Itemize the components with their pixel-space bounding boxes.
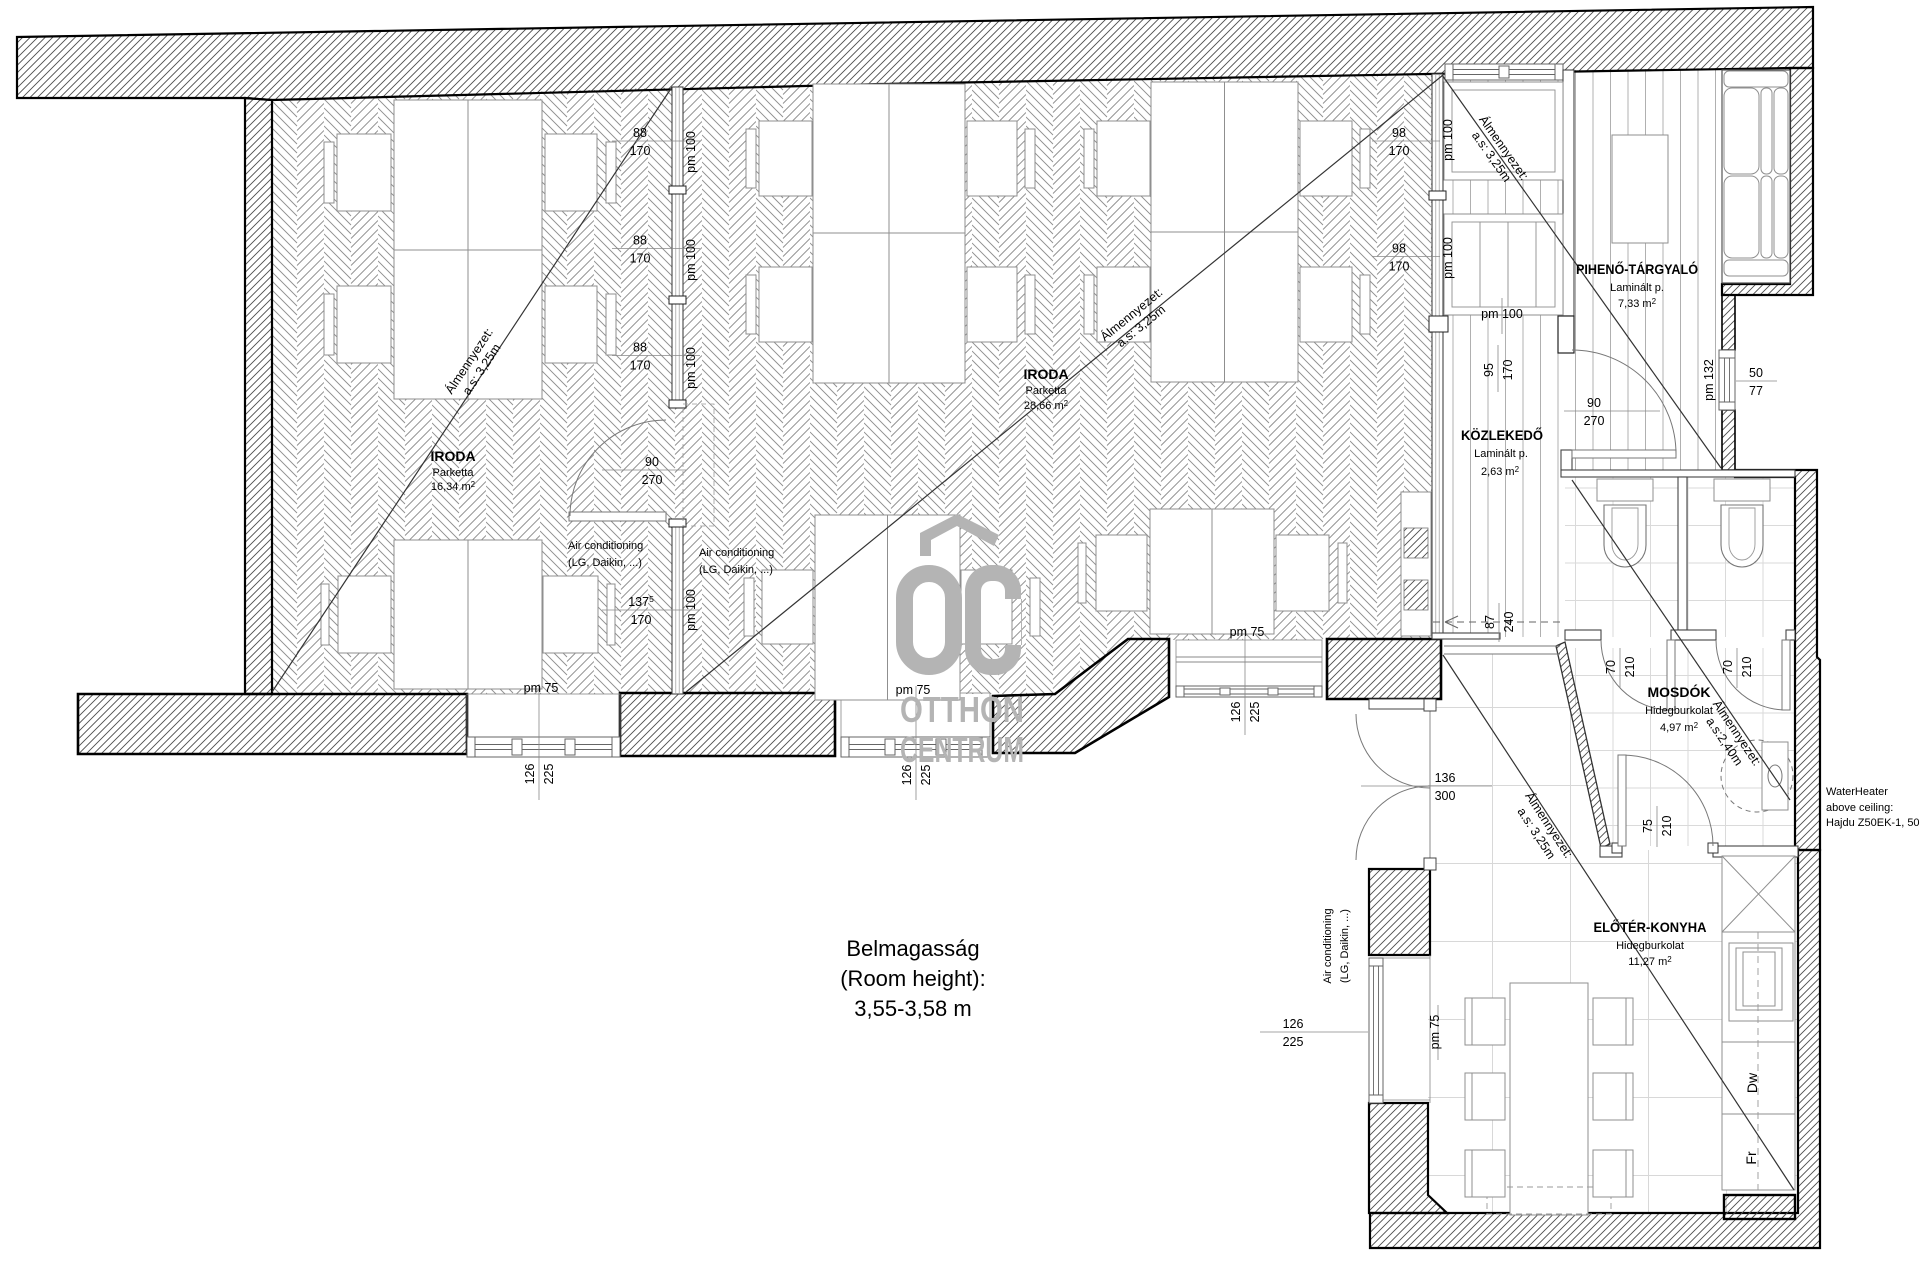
svg-text:240: 240: [1502, 612, 1516, 633]
svg-text:16,34 m2: 16,34 m2: [431, 480, 476, 493]
svg-text:pm 100: pm 100: [684, 589, 698, 631]
svg-text:OTTHON: OTTHON: [900, 689, 1024, 730]
svg-text:Hidegburkolat: Hidegburkolat: [1616, 940, 1684, 952]
svg-text:126: 126: [523, 764, 537, 785]
svg-text:pm 100: pm 100: [1441, 237, 1455, 279]
svg-text:PIHENŐ-TÁRGYALÓ: PIHENŐ-TÁRGYALÓ: [1576, 260, 1698, 277]
svg-text:Parketta: Parketta: [1026, 385, 1068, 397]
svg-text:KÖZLEKEDŐ: KÖZLEKEDŐ: [1461, 426, 1543, 443]
svg-text:Air conditioning: Air conditioning: [1322, 908, 1334, 983]
svg-text:Air conditioning: Air conditioning: [568, 540, 643, 552]
svg-text:ELŐTÉR-KONYHA: ELŐTÉR-KONYHA: [1594, 918, 1707, 935]
svg-text:210: 210: [1623, 657, 1637, 678]
svg-text:87: 87: [1483, 615, 1497, 629]
svg-text:88: 88: [633, 341, 647, 355]
svg-text:170: 170: [630, 144, 651, 158]
svg-text:Parketta: Parketta: [433, 467, 475, 479]
svg-text:(LG, Daikin, ...): (LG, Daikin, ...): [1339, 909, 1351, 983]
svg-text:90: 90: [1587, 396, 1601, 410]
svg-text:210: 210: [1660, 816, 1674, 837]
svg-text:70: 70: [1604, 660, 1618, 674]
svg-text:210: 210: [1740, 657, 1754, 678]
svg-text:Dw: Dw: [1744, 1072, 1760, 1093]
svg-text:Belmagasság: Belmagasság: [846, 936, 979, 961]
svg-text:Hidegburkolat: Hidegburkolat: [1645, 705, 1713, 717]
svg-text:IRODA: IRODA: [430, 448, 475, 464]
svg-text:126: 126: [1283, 1017, 1304, 1031]
svg-text:136: 136: [1435, 771, 1456, 785]
svg-text:MOSDÓK: MOSDÓK: [1648, 683, 1711, 700]
svg-text:170: 170: [1389, 144, 1410, 158]
svg-text:pm 100: pm 100: [684, 131, 698, 173]
svg-text:98: 98: [1392, 242, 1406, 256]
svg-text:225: 225: [542, 764, 556, 785]
svg-text:70: 70: [1721, 660, 1735, 674]
svg-text:126: 126: [1229, 702, 1243, 723]
svg-text:98: 98: [1392, 126, 1406, 140]
svg-text:CENTRUM: CENTRUM: [900, 729, 1024, 770]
svg-text:Laminált p.: Laminált p.: [1474, 448, 1528, 460]
svg-text:170: 170: [631, 613, 652, 627]
svg-text:300: 300: [1435, 789, 1456, 803]
svg-text:Laminált p.: Laminált p.: [1610, 282, 1664, 294]
svg-text:pm 100: pm 100: [1481, 307, 1523, 321]
svg-text:pm 132: pm 132: [1702, 359, 1716, 401]
svg-text:Fr: Fr: [1743, 1151, 1759, 1165]
svg-text:Air conditioning: Air conditioning: [699, 547, 774, 559]
svg-text:WaterHeater: WaterHeater: [1826, 786, 1888, 798]
svg-text:88: 88: [633, 126, 647, 140]
svg-text:4,97 m2: 4,97 m2: [1660, 721, 1699, 734]
svg-text:95: 95: [1482, 363, 1496, 377]
svg-text:pm 100: pm 100: [684, 239, 698, 281]
svg-text:90: 90: [645, 455, 659, 469]
svg-text:pm 75: pm 75: [524, 681, 559, 695]
svg-text:(Room height):: (Room height):: [840, 966, 986, 991]
svg-text:170: 170: [1501, 360, 1515, 381]
svg-text:225: 225: [1248, 702, 1262, 723]
svg-text:Hajdu Z50EK-1, 50l: Hajdu Z50EK-1, 50l: [1826, 817, 1920, 829]
svg-text:28,66 m2: 28,66 m2: [1024, 399, 1069, 412]
svg-text:225: 225: [1283, 1035, 1304, 1049]
svg-text:(LG, Daikin, ...): (LG, Daikin, ...): [568, 557, 642, 569]
svg-text:2,63 m2: 2,63 m2: [1481, 465, 1520, 478]
svg-text:270: 270: [1584, 414, 1605, 428]
svg-text:170: 170: [1389, 260, 1410, 274]
svg-text:7,33 m2: 7,33 m2: [1618, 297, 1657, 310]
svg-text:77: 77: [1749, 384, 1763, 398]
svg-text:pm 75: pm 75: [1230, 625, 1265, 639]
svg-text:75: 75: [1641, 819, 1655, 833]
svg-text:270: 270: [642, 473, 663, 487]
svg-text:pm 100: pm 100: [1441, 119, 1455, 161]
svg-text:170: 170: [630, 252, 651, 266]
svg-text:pm 75: pm 75: [1428, 1015, 1442, 1050]
svg-text:(LG, Daikin, ...): (LG, Daikin, ...): [699, 564, 773, 576]
svg-text:pm 100: pm 100: [684, 347, 698, 389]
svg-text:IRODA: IRODA: [1023, 366, 1068, 382]
svg-text:3,55-3,58 m: 3,55-3,58 m: [854, 996, 971, 1021]
svg-text:above ceiling:: above ceiling:: [1826, 802, 1893, 814]
svg-text:170: 170: [630, 359, 651, 373]
svg-text:88: 88: [633, 234, 647, 248]
svg-text:50: 50: [1749, 366, 1763, 380]
svg-text:11,27 m2: 11,27 m2: [1628, 955, 1672, 968]
